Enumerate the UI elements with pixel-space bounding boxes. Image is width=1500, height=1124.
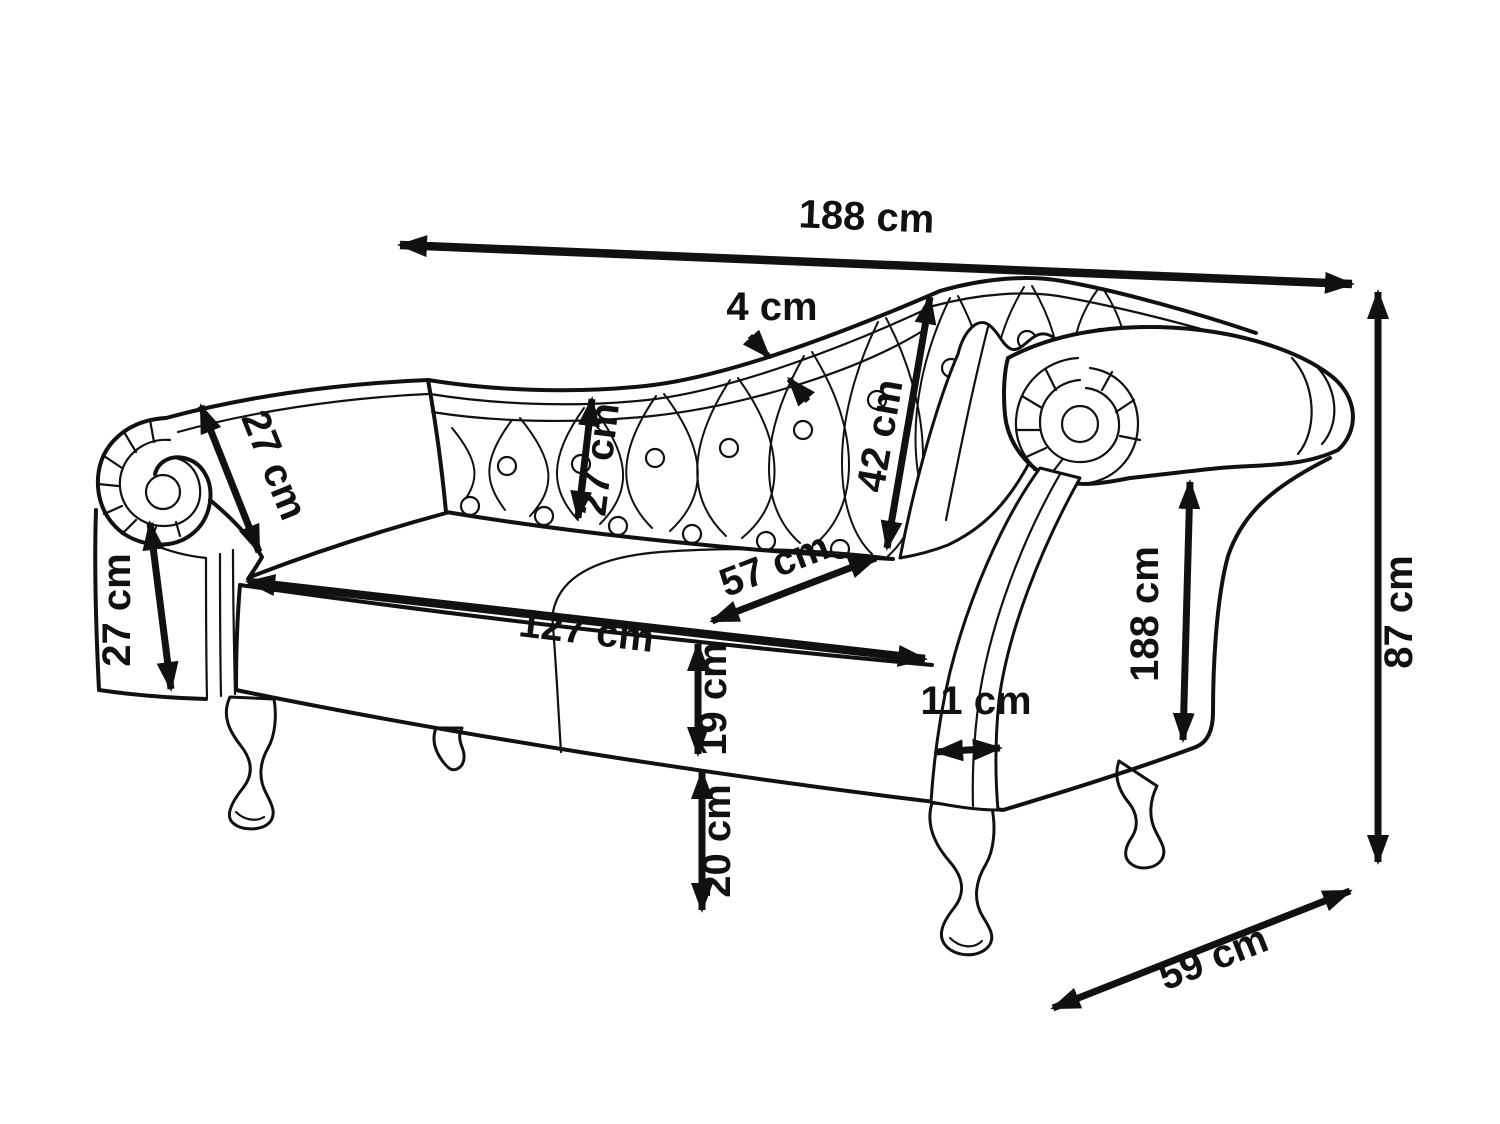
dim-leg-height: 20 cm	[695, 772, 739, 910]
dim-label-overall-height: 87 cm	[1377, 555, 1421, 668]
dim-left-arm-top: 27 cm	[201, 404, 316, 552]
dim-label-overall-depth: 59 cm	[1152, 917, 1274, 1000]
dim-overall-length: 188 cm	[400, 192, 1352, 284]
dim-label-seat-length: 127 cm	[517, 601, 657, 661]
dimension-diagram: 188 cm 87 cm 59 cm 127 cm 57 cm 42 cm 27…	[0, 0, 1500, 1124]
dim-seat-length: 127 cm	[248, 582, 925, 661]
dim-seat-depth: 57 cm	[712, 524, 876, 621]
dim-label-left-arm-front: 27 cm	[95, 553, 139, 666]
dim-label-arm-support-width: 11 cm	[920, 679, 1031, 723]
dim-label-overall-length: 188 cm	[798, 192, 935, 241]
dim-overall-height: 87 cm	[1377, 292, 1421, 862]
dim-label-base-height: 19 cm	[691, 642, 735, 755]
dim-label-rail-thickness: 4 cm	[726, 285, 817, 329]
right-arm-roll	[1004, 327, 1353, 484]
dim-label-backrest-panel: 27 cm	[570, 400, 627, 518]
chaise-longue-drawing: 188 cm 87 cm 59 cm 127 cm 57 cm 42 cm 27…	[0, 0, 1500, 1124]
dim-base-height: 19 cm	[691, 642, 735, 755]
dim-label-leg-height: 20 cm	[695, 784, 739, 897]
dim-label-right-arm-length: 188 cm	[1123, 546, 1167, 682]
dim-overall-depth: 59 cm	[1053, 891, 1350, 1008]
dim-right-arm-length: 188 cm	[1123, 482, 1190, 740]
